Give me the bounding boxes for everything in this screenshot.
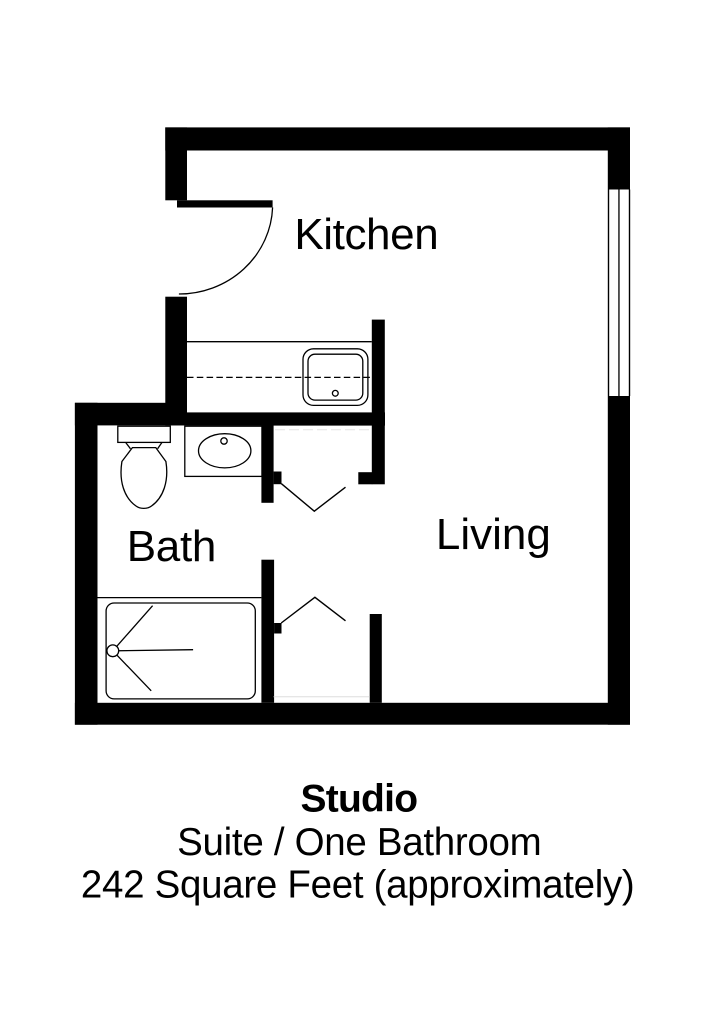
svg-text:Bath: Bath xyxy=(127,522,216,571)
svg-text:Suite / One Bathroom: Suite / One Bathroom xyxy=(177,821,541,864)
svg-text:Kitchen: Kitchen xyxy=(294,210,438,259)
svg-text:Living: Living xyxy=(436,510,551,559)
svg-text:242 Square Feet (approximately: 242 Square Feet (approximately) xyxy=(81,863,635,906)
svg-text:Studio: Studio xyxy=(300,778,417,821)
